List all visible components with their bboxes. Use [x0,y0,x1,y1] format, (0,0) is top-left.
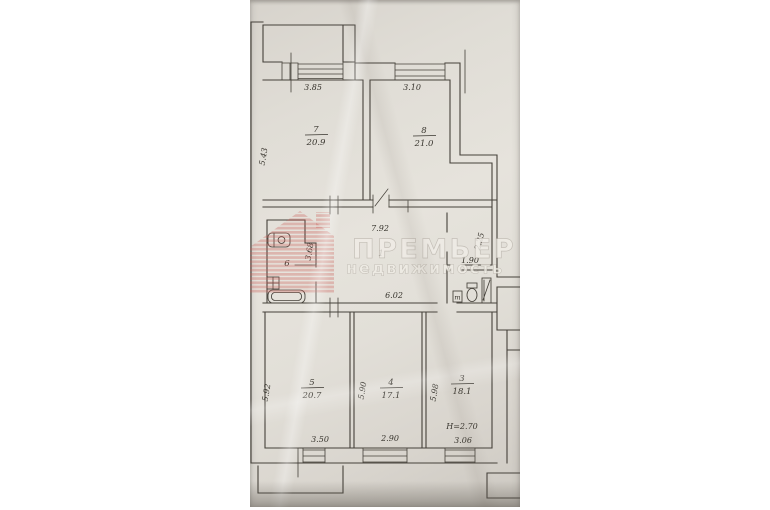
room-7-underline [305,135,328,136]
room-3-underline [451,384,474,385]
striped-house-icon [250,211,334,294]
wc-shower-icon [482,278,491,303]
room-3-depth-dim: 5.98 [429,383,441,402]
room-5-area: 20.7 [302,391,323,401]
room-4-underline [380,388,403,389]
floor-plan-photo: т 7 20.9 3.85 5.43 8 21.0 3.10 7.92 1 6.… [250,0,520,507]
room-3-width-dim: 3.06 [454,436,472,445]
room-8-underline [413,136,436,137]
room-4-depth-dim: 5.90 [357,381,369,400]
room-5-depth-dim: 5.92 [261,383,273,402]
watermark-subtitle: недвижимость [346,259,504,278]
room-5-width-dim: 3.50 [311,435,329,444]
corridor-top-width-dim: 7.92 [371,224,389,233]
page: т 7 20.9 3.85 5.43 8 21.0 3.10 7.92 1 6.… [0,0,770,510]
room-5-underline [301,388,324,389]
room-4-width-dim: 2.90 [380,434,399,443]
room-8-area: 21.0 [414,139,435,149]
room-4-area: 17.1 [382,391,401,401]
room-3-area: 18.1 [453,387,472,397]
room-7-number: 7 [313,125,319,135]
room-7-width-dim: 3.85 [304,83,322,92]
wc-toilet-icon [467,283,477,302]
room-7-area: 20.9 [306,138,327,148]
room-4-number: 4 [387,378,393,388]
room-5-number: 5 [309,378,314,388]
door-room-8 [373,189,389,213]
room-8-number: 8 [421,126,427,136]
room-3-number: 3 [459,374,464,384]
room-7-depth-dim: 5.43 [258,147,270,166]
room-8-width-dim: 3.10 [403,83,421,92]
floor-plan-drawing: т 7 20.9 3.85 5.43 8 21.0 3.10 7.92 1 6.… [250,0,520,507]
wc-fixture-label: т [454,294,460,302]
corridor-bottom-width-dim: 6.02 [385,291,403,300]
room-3-ceiling-height: Н=2.70 [445,422,478,431]
wc-small-fixture-icon: т [453,291,462,302]
